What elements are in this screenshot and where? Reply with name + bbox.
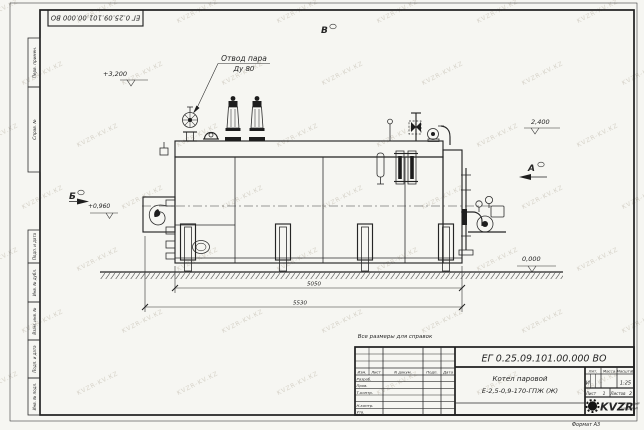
flame-icon xyxy=(154,209,160,217)
hook-pipe xyxy=(438,126,450,145)
stamp-sprav-no: Справ. № xyxy=(32,119,37,140)
safety-valve xyxy=(249,96,265,141)
stamp-inv-podl: Инв. № подл. xyxy=(32,383,37,411)
view-b-text: Б xyxy=(69,192,76,202)
mass-label: Масса xyxy=(603,369,616,374)
lit-mass-scale: Лит. Масса Масштаб И 1:25 xyxy=(585,367,635,388)
format-label: Формат А3 xyxy=(572,422,600,428)
role-nkontr: Н.контр. xyxy=(357,403,374,408)
support-leg xyxy=(181,224,196,271)
role-prov: Пров. xyxy=(357,383,368,388)
scale-value: 1:25 xyxy=(620,381,631,387)
support-leg xyxy=(358,224,373,271)
scale-label: Масштаб xyxy=(616,369,635,374)
safety-valve xyxy=(225,96,241,141)
product-name-line1: Котел паровой xyxy=(493,375,548,383)
sheet-numbers: Лист 1 Листов 2 xyxy=(585,388,634,397)
rev-header-data: Дата xyxy=(442,370,454,375)
ground-hatch xyxy=(100,272,563,279)
boiler-drawing xyxy=(100,96,563,279)
company-name-line2: ЗАВОД РЭП xyxy=(620,407,639,411)
role-razrab: Разраб. xyxy=(357,377,372,382)
steam-drum xyxy=(175,141,443,157)
feed-pump xyxy=(462,196,506,232)
view-v-text: В xyxy=(321,26,328,36)
elevation-mark-right: 2,400 xyxy=(524,118,560,134)
elev-right-text: 2,400 xyxy=(531,118,550,126)
dimension-overall-length: 5530 xyxy=(142,301,465,311)
view-label-a: А xyxy=(519,162,547,180)
view-label-v: В xyxy=(321,24,336,36)
annotations: Отвод пара Ду 80 +3,200 2,400 +0,960 xyxy=(69,24,560,340)
rev-header-list: Лист xyxy=(370,370,381,375)
view-label-b: Б xyxy=(69,190,89,204)
rev-header-podp: Подп. xyxy=(426,370,438,375)
rear-section xyxy=(443,150,462,263)
role-tkontr: Т.контр. xyxy=(357,390,373,395)
boiler-casing xyxy=(175,157,443,263)
water-level-gauges xyxy=(377,151,418,184)
stamp-podp-data-1: Подп. и дата xyxy=(32,232,37,260)
vent-fitting xyxy=(428,129,440,142)
stamp-podp-data-2: Подп. и дата xyxy=(32,345,37,373)
steam-outlet-text-2: Ду 80 xyxy=(233,65,255,73)
ground-line xyxy=(100,272,563,279)
elevation-mark-top: +3,200 xyxy=(103,70,148,86)
title-doc-number: ЕГ 0.25.09.101.00.000 ВО xyxy=(481,354,607,365)
dim-body-text: 5050 xyxy=(307,282,321,288)
support-leg xyxy=(276,224,291,271)
drawing-sheet: KVZR-KV.KZKVZR-KV.KZKVZR-KV.KZKVZR-KV.KZ… xyxy=(0,0,644,430)
elev-mid-text: +0,960 xyxy=(88,203,110,210)
role-utv: Утв. xyxy=(357,410,365,415)
steam-outlet-text-1: Отвод пара xyxy=(221,54,267,63)
sheets-label: Листов xyxy=(610,391,627,396)
dim-overall-text: 5530 xyxy=(293,301,307,307)
front-fittings xyxy=(160,142,175,259)
rev-header-ndokum: N докум. xyxy=(394,370,412,375)
left-margin-stamps: Перв. примен. Справ. № Подп. и дата Инв.… xyxy=(28,38,40,415)
company-name-line1: КОТЕЛЬНЫЙ xyxy=(620,401,640,406)
rev-header-izm: Изм. xyxy=(358,370,367,375)
sheet-label: Лист xyxy=(585,391,597,396)
reference-note: Все размеры для справок xyxy=(358,334,433,340)
product-name-line2: Е-2,5-0,9-170-ГПЖ (Ж) xyxy=(482,387,558,395)
lit-value: И xyxy=(586,381,590,387)
corner-doc-number: ЕГ 0.25.09.101.00.000 ВО xyxy=(50,14,140,22)
support-leg xyxy=(439,224,454,271)
sheets-value: 2 xyxy=(629,391,632,397)
view-a-text: А xyxy=(527,164,535,174)
lit-label: Лит. xyxy=(588,369,598,374)
leader-arrow xyxy=(193,106,200,114)
elevation-mark-mid: +0,960 xyxy=(88,203,118,219)
elev-top-text: +3,200 xyxy=(103,70,127,78)
sheet-value: 1 xyxy=(603,391,606,397)
elevation-mark-ground: 0,000 xyxy=(517,255,556,272)
dome-fitting xyxy=(203,133,219,139)
company-logo: KVZR КОТЕЛЬНЫЙ ЗАВОД РЭП xyxy=(587,400,641,414)
stamp-perv-primen: Перв. примен. xyxy=(32,47,37,78)
stamp-vzam-inv: Взам. инв. № xyxy=(32,307,37,334)
steam-outlet-valve xyxy=(183,107,198,141)
level-probe xyxy=(387,119,393,141)
gear-icon xyxy=(588,401,597,410)
standpipe-valve xyxy=(411,113,421,141)
stamp-inv-dubl: Инв. № дубл. xyxy=(32,269,37,296)
corner-designation-stamp: ЕГ 0.25.09.101.00.000 ВО xyxy=(48,10,143,26)
drawing-canvas: Перв. примен. Справ. № Подп. и дата Инв.… xyxy=(0,0,644,430)
revision-table: Изм. Лист N докум. Подп. Дата Разраб. Пр… xyxy=(355,347,455,415)
support-legs xyxy=(181,224,454,271)
elev-ground-text: 0,000 xyxy=(522,255,541,263)
